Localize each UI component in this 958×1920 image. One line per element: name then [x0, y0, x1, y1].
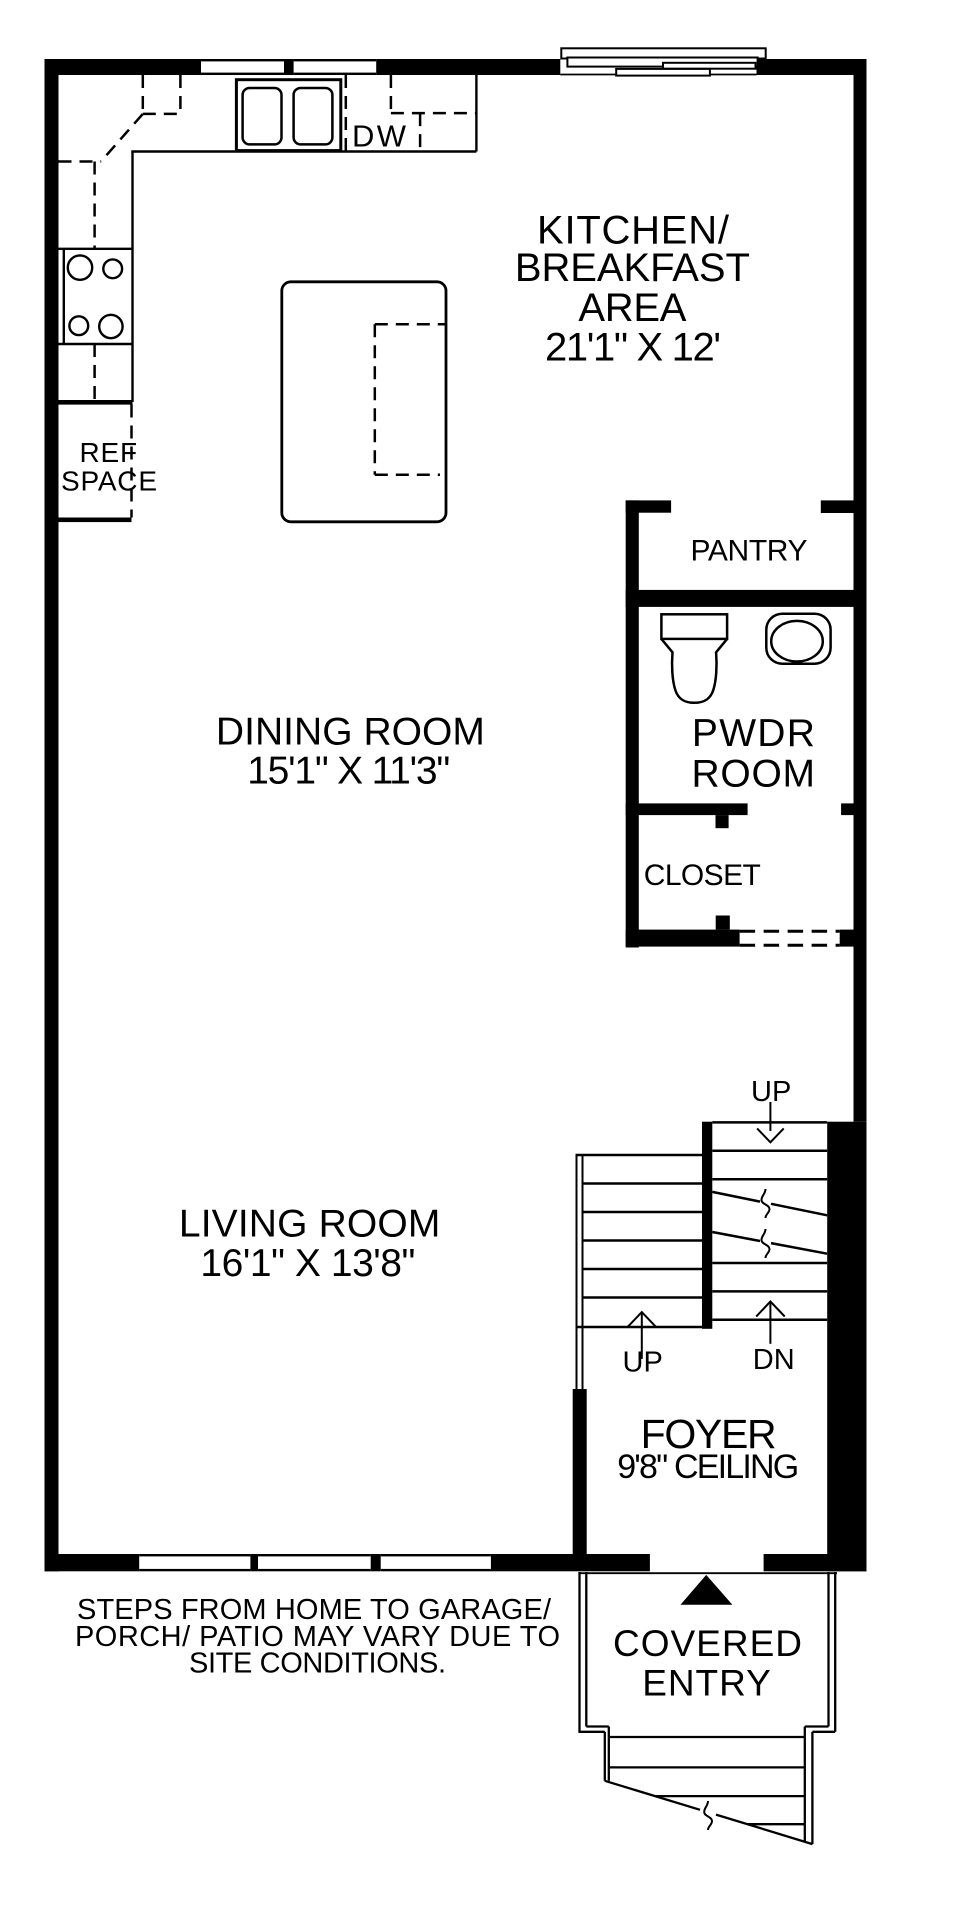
svg-text:16'1" X 13'8": 16'1" X 13'8"	[200, 1242, 415, 1285]
svg-text:UP: UP	[751, 1076, 791, 1108]
svg-text:SITE CONDITIONS.: SITE CONDITIONS.	[189, 1648, 446, 1680]
svg-text:REF: REF	[80, 437, 138, 468]
svg-text:SPACE: SPACE	[61, 466, 157, 497]
svg-text:COVERED: COVERED	[613, 1623, 802, 1664]
svg-text:15'1" X 11'3": 15'1" X 11'3"	[247, 750, 450, 793]
svg-text:DW: DW	[352, 119, 407, 154]
svg-text:21'1" X 12': 21'1" X 12'	[545, 326, 721, 370]
svg-text:DINING ROOM: DINING ROOM	[216, 711, 485, 754]
svg-text:DN: DN	[753, 1344, 795, 1376]
svg-text:UP: UP	[623, 1347, 663, 1379]
svg-text:ENTRY: ENTRY	[642, 1662, 771, 1703]
svg-text:9'8" CEILING: 9'8" CEILING	[617, 1448, 799, 1486]
svg-text:ROOM: ROOM	[692, 753, 816, 796]
svg-text:CLOSET: CLOSET	[644, 859, 761, 892]
svg-text:LIVING ROOM: LIVING ROOM	[179, 1202, 440, 1245]
svg-text:PWDR: PWDR	[692, 712, 815, 755]
svg-text:BREAKFAST: BREAKFAST	[515, 246, 750, 290]
svg-text:AREA: AREA	[578, 286, 686, 330]
svg-text:PANTRY: PANTRY	[691, 535, 808, 568]
